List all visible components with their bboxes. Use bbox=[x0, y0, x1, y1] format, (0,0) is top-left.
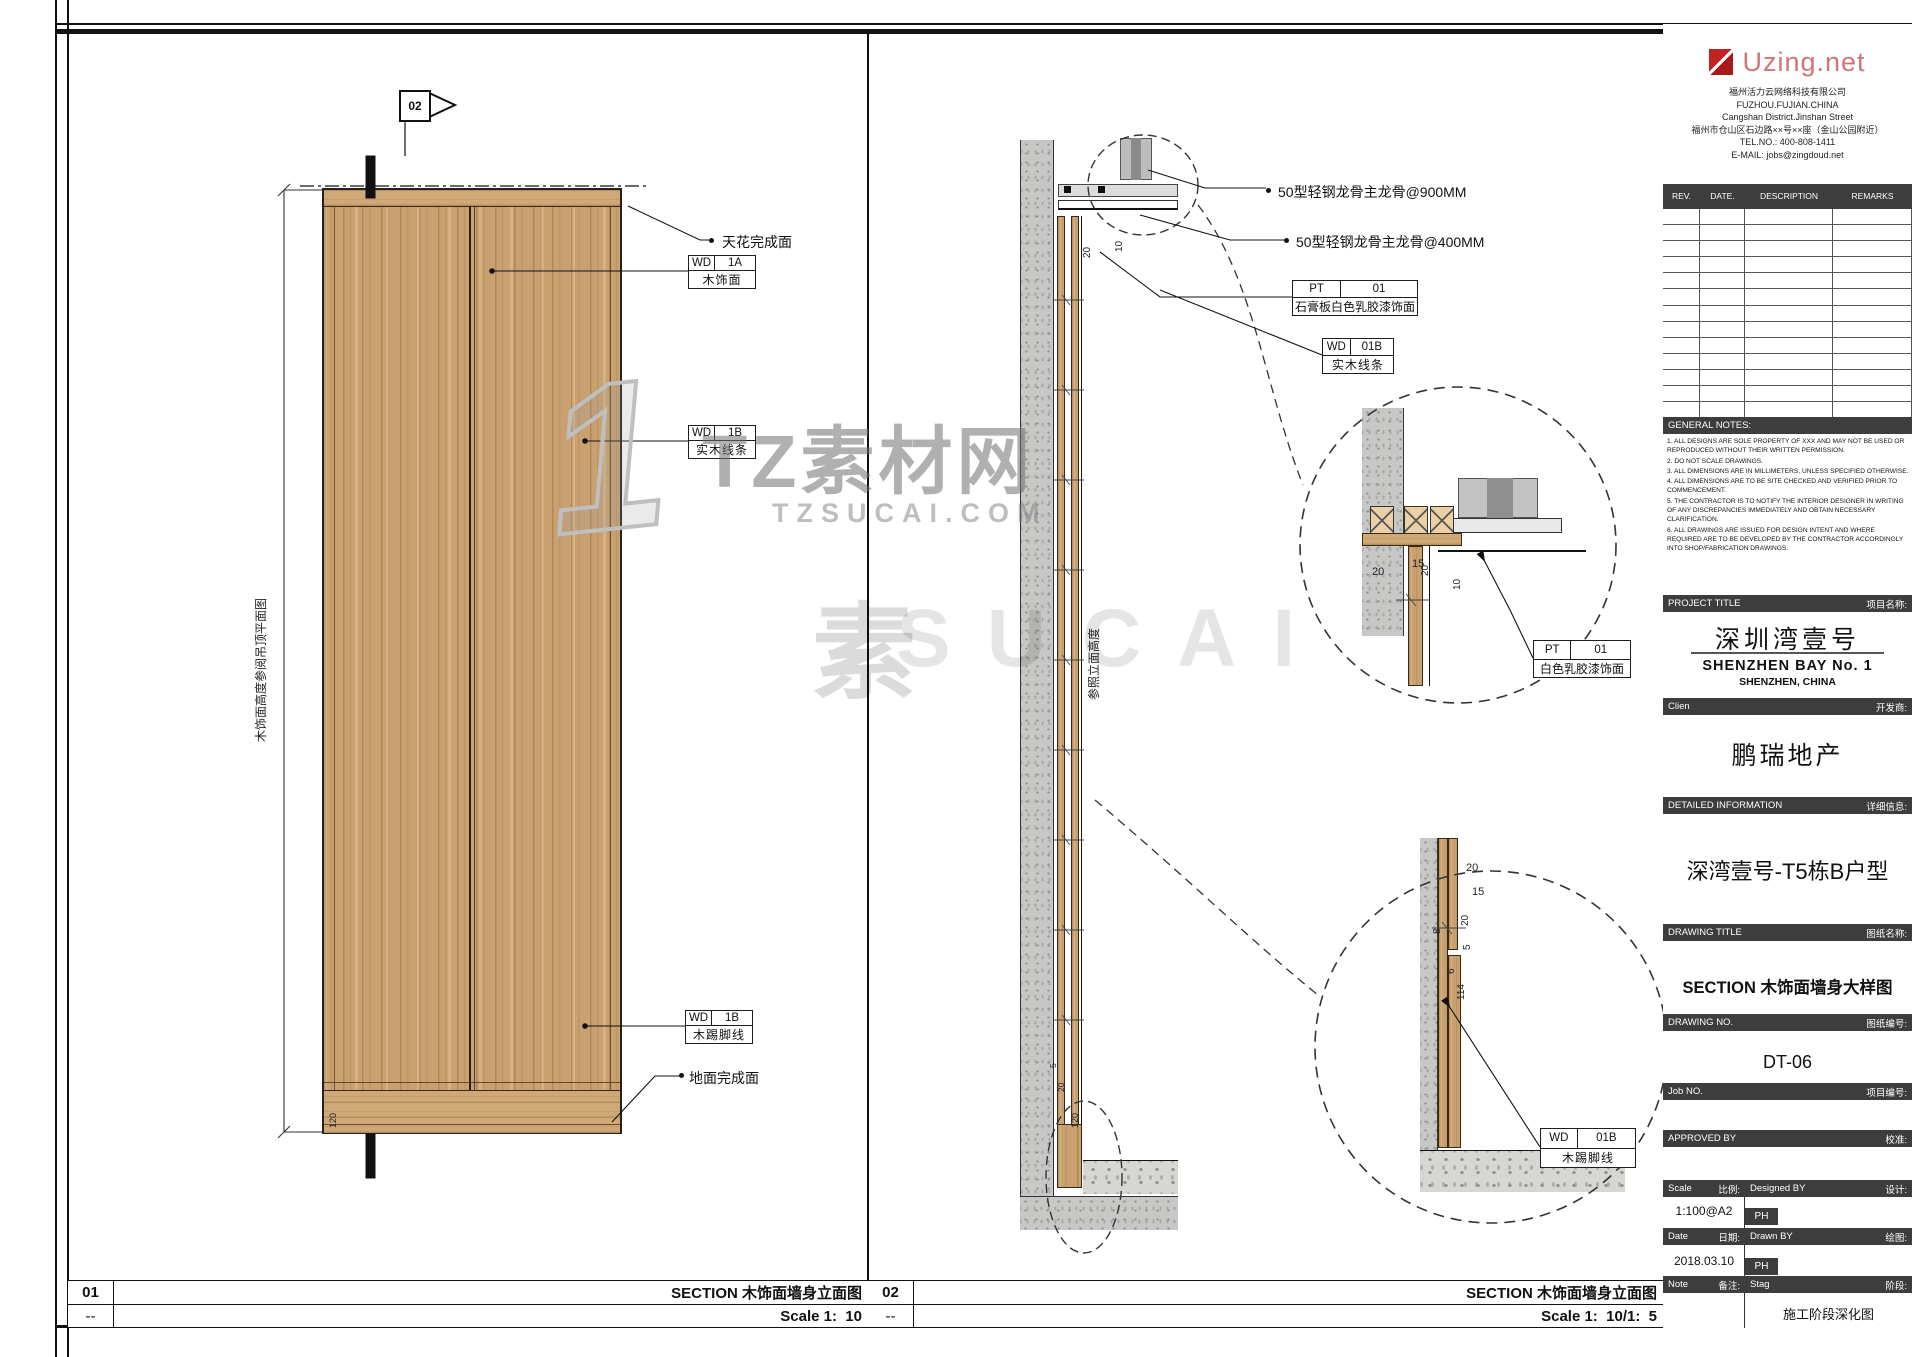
drawing-no-label-cn: 图纸编号: bbox=[1866, 1016, 1907, 1030]
designed-by-label-cn: 设计: bbox=[1885, 1182, 1907, 1196]
elevation-skirt-dim: 120 bbox=[328, 1113, 338, 1128]
wall-furring-strip bbox=[1057, 216, 1065, 1144]
wood-panel-top-rail bbox=[324, 190, 620, 207]
tag-wd1a: WD 1A 木饰面 bbox=[688, 255, 756, 289]
tag-pt01-paint-num: 01 bbox=[1571, 641, 1630, 659]
rev-table-header: REV. DATE. DESCRIPTION REMARKS bbox=[1663, 184, 1912, 209]
skirting-shadow-line bbox=[324, 1082, 620, 1083]
stage-label-en: Stag bbox=[1750, 1279, 1770, 1290]
view-02-scale: Scale 1: 10/1: 5 bbox=[914, 1308, 1663, 1325]
client-bar: Clien 开发商: bbox=[1663, 698, 1912, 715]
section-skirting bbox=[1057, 1124, 1082, 1188]
tag-wd01b-skirt-code: WD bbox=[1541, 1129, 1578, 1148]
drawn-by-value: PH bbox=[1745, 1258, 1778, 1275]
date-value: 2018.03.10 bbox=[1663, 1254, 1745, 1268]
tag-pt01-gypsum-code: PT bbox=[1293, 281, 1341, 297]
tag-pt01-gypsum: PT 01 石膏板白色乳胶漆饰面 bbox=[1292, 280, 1418, 316]
detail-top-blocking-a bbox=[1370, 506, 1394, 535]
dim-db-c: 20 bbox=[1460, 915, 1471, 926]
view-01-rev: -- bbox=[68, 1305, 114, 1327]
dim-dt-d: 20 bbox=[1372, 566, 1384, 578]
section-leaders bbox=[1100, 170, 1540, 1147]
date-label-en: Date bbox=[1668, 1231, 1688, 1242]
tag-wd1b-skirt-desc: 木踢脚线 bbox=[686, 1026, 752, 1043]
designed-by-label-en: Designed BY bbox=[1750, 1183, 1805, 1194]
tag-wd01b-skirt-desc: 木踢脚线 bbox=[1541, 1149, 1635, 1168]
ceiling-fixing-b bbox=[1098, 186, 1105, 193]
tag-wd1b-skirt-code: WD bbox=[686, 1011, 712, 1025]
dim-db-a: 20 bbox=[1466, 862, 1478, 874]
general-notes-heading: GENERAL NOTES: bbox=[1668, 420, 1751, 431]
view-02-rev: -- bbox=[868, 1305, 914, 1327]
client-label-en: Clien bbox=[1668, 701, 1690, 712]
tag-wd1a-desc: 木饰面 bbox=[689, 271, 755, 288]
tag-wd1b-desc: 实木线条 bbox=[689, 441, 755, 458]
tag-wd01b-trim-code: WD bbox=[1323, 339, 1351, 355]
panel-stile-right bbox=[610, 206, 611, 1090]
dim-top-a: 20 bbox=[1082, 247, 1093, 258]
approved-by-label-cn: 校准: bbox=[1885, 1132, 1907, 1146]
tag-wd1b-skirt: WD 1B 木踢脚线 bbox=[685, 1010, 753, 1044]
tag-wd1b-skirt-num: 1B bbox=[712, 1011, 752, 1025]
tag-pt01-paint: PT 01 白色乳胶漆饰面 bbox=[1533, 640, 1631, 678]
detailed-info-value: 深湾壹号-T5栋B户型 bbox=[1663, 854, 1912, 886]
project-name-en: SHENZHEN BAY No. 1 bbox=[1663, 658, 1912, 674]
section-cut-flag: 02 bbox=[399, 90, 431, 122]
panel-stile-left bbox=[334, 206, 335, 1090]
panel-center-joint-a bbox=[469, 206, 471, 1090]
tag-wd01b-skirt: WD 01B 木踢脚线 bbox=[1540, 1128, 1636, 1168]
tag-wd1b: WD 1B 实木线条 bbox=[688, 425, 756, 459]
detail-bottom-concrete bbox=[1420, 838, 1438, 1150]
rev-col-date: DATE. bbox=[1700, 184, 1745, 209]
project-location: SHENZHEN, CHINA bbox=[1663, 676, 1912, 688]
viewport-bar-01: 01 SECTION 木饰面墙身立面图 -- Scale 1: 10 bbox=[68, 1280, 868, 1327]
detail-top-gypsum bbox=[1438, 518, 1562, 533]
section-height-note: 参照立面高度 bbox=[1085, 628, 1102, 700]
keel-400-label: 50型轻钢龙骨主龙骨@400MM bbox=[1296, 232, 1484, 252]
tag-wd01b-trim-num: 01B bbox=[1351, 339, 1393, 355]
detail-top-rail bbox=[1362, 533, 1462, 546]
dim-db-g: 114 bbox=[1456, 984, 1467, 1000]
drawn-by-bar: Drawn BY 绘图: bbox=[1745, 1228, 1912, 1245]
view-01-scale: Scale 1: 10 bbox=[114, 1308, 868, 1325]
keel-400-dot bbox=[1284, 238, 1289, 243]
project-name-cn: 深圳湾壹号 bbox=[1663, 620, 1912, 656]
approved-by-label-en: APPROVED BY bbox=[1668, 1133, 1736, 1144]
rev-col-description: DESCRIPTION bbox=[1745, 184, 1833, 209]
stage-value: 施工阶段深化图 bbox=[1745, 1304, 1912, 1323]
tag-pt01-gypsum-num: 01 bbox=[1341, 281, 1417, 297]
section-fixing-ticks bbox=[1054, 295, 1466, 1025]
job-no-label-cn: 项目编号: bbox=[1866, 1085, 1907, 1099]
keel-900-label: 50型轻钢龙骨主龙骨@900MM bbox=[1278, 182, 1466, 202]
wall-panel-strip bbox=[1071, 216, 1079, 1144]
section-floor-finish bbox=[1083, 1160, 1178, 1194]
detailed-info-bar: DETAILED INFORMATION 详细信息: bbox=[1663, 797, 1912, 814]
titleblock-subcol-divider bbox=[1744, 1180, 1745, 1328]
tag-wd1a-num: 1A bbox=[715, 256, 755, 270]
rev-col-remarks: REMARKS bbox=[1833, 184, 1912, 209]
margin-line-inner bbox=[67, 0, 69, 1357]
wood-panel-elevation bbox=[322, 188, 622, 1134]
detail-bottom-furring bbox=[1438, 838, 1448, 1148]
designed-by-value: PH bbox=[1745, 1208, 1778, 1225]
dim-db-d: 8 bbox=[1432, 928, 1443, 934]
skirting-base-line bbox=[324, 1124, 620, 1125]
drawing-title-value: SECTION 木饰面墙身大样图 bbox=[1663, 974, 1912, 998]
detail-top-blocking-c bbox=[1430, 506, 1454, 535]
stage-label-cn: 阶段: bbox=[1885, 1278, 1907, 1292]
job-no-label-en: Job NO. bbox=[1668, 1086, 1703, 1097]
watermark-faint-letters: SUCAI bbox=[896, 592, 1331, 686]
panel-divider bbox=[867, 34, 869, 1328]
project-name-underline bbox=[1691, 652, 1884, 654]
tag-wd01b-skirt-num: 01B bbox=[1578, 1129, 1635, 1148]
tag-wd01b-trim: WD 01B 实木线条 bbox=[1322, 338, 1394, 374]
watermark-domain: TZSUCAI.COM bbox=[772, 498, 1047, 529]
tag-pt01-paint-code: PT bbox=[1534, 641, 1571, 659]
client-label-cn: 开发商: bbox=[1876, 700, 1907, 714]
drawing-title-label-en: DRAWING TITLE bbox=[1668, 927, 1742, 938]
scale-label-en: Scale bbox=[1668, 1183, 1692, 1194]
dim-floor-c: 5 bbox=[1048, 1063, 1058, 1068]
ceiling-gypsum-board bbox=[1058, 200, 1178, 210]
watermark-faint-char: 素 bbox=[812, 568, 916, 719]
top-border-heavy bbox=[55, 29, 1912, 34]
approved-by-bar: APPROVED BY 校准: bbox=[1663, 1130, 1912, 1147]
drawing-no-label-en: DRAWING NO. bbox=[1668, 1017, 1733, 1028]
dim-floor-a: 120 bbox=[1070, 1113, 1080, 1128]
ceiling-finish-label: 天花完成面 bbox=[722, 232, 792, 252]
ceiling-finish-dot bbox=[709, 238, 714, 243]
note-label-cn: 备注: bbox=[1718, 1278, 1740, 1292]
drawing-no-value: DT-06 bbox=[1663, 1052, 1912, 1073]
designed-by-bar: Designed BY 设计: bbox=[1745, 1180, 1912, 1197]
scale-bar: Scale 比例: bbox=[1663, 1180, 1745, 1197]
section-floor-slab bbox=[1020, 1196, 1178, 1230]
stage-bar: Stag 阶段: bbox=[1745, 1276, 1912, 1293]
elevation-dim-line bbox=[278, 184, 322, 1138]
scale-value: 1:100@A2 bbox=[1663, 1204, 1745, 1218]
rev-table-rows bbox=[1663, 209, 1912, 418]
detail-top-hanger-core bbox=[1487, 478, 1513, 518]
concrete-wall bbox=[1020, 140, 1054, 1198]
general-notes-list: 1. ALL DESIGNS ARE SOLE PROPERTY OF XXX … bbox=[1663, 434, 1914, 555]
floor-finish-label: 地面完成面 bbox=[689, 1068, 759, 1088]
uzing-logo-text: Uzing.net bbox=[1742, 47, 1865, 78]
ceiling-fixing-a bbox=[1064, 186, 1071, 193]
drawing-no-bar: DRAWING NO. 图纸编号: bbox=[1663, 1014, 1912, 1031]
keel-900-dot bbox=[1266, 188, 1271, 193]
job-no-bar: Job NO. 项目编号: bbox=[1663, 1083, 1912, 1100]
dim-db-b: 15 bbox=[1472, 886, 1484, 898]
margin-line-outer bbox=[55, 0, 57, 1357]
dim-db-e: 5 bbox=[1462, 944, 1473, 950]
ceiling-main-keel bbox=[1058, 184, 1178, 197]
project-title-label-en: PROJECT TITLE bbox=[1668, 598, 1741, 609]
client-name: 鹏瑞地产 bbox=[1663, 736, 1912, 772]
dim-floor-b: 20 bbox=[1056, 1083, 1066, 1092]
wall-panel-face-line bbox=[1081, 216, 1082, 1144]
view-02-title: SECTION 木饰面墙身立面图 bbox=[914, 1282, 1663, 1303]
top-border-thin bbox=[55, 23, 1912, 25]
dim-top-b: 10 bbox=[1114, 241, 1125, 252]
tag-pt01-gypsum-desc: 石膏板白色乳胶漆饰面 bbox=[1293, 298, 1417, 315]
wood-panel-skirting bbox=[324, 1090, 620, 1133]
drawing-title-label-cn: 图纸名称: bbox=[1866, 926, 1907, 940]
tag-wd01b-trim-desc: 实木线条 bbox=[1323, 356, 1393, 373]
detail-top-blocking-b bbox=[1404, 506, 1428, 535]
detailed-info-label-cn: 详细信息: bbox=[1866, 799, 1907, 813]
uzing-logo-icon bbox=[1709, 49, 1733, 75]
drawing-title-bar: DRAWING TITLE 图纸名称: bbox=[1663, 924, 1912, 941]
section-cut-flag-number: 02 bbox=[408, 99, 421, 113]
view-01-number: 01 bbox=[68, 1281, 114, 1304]
dim-dt-b: 10 bbox=[1452, 579, 1463, 590]
view-02-number: 02 bbox=[868, 1281, 914, 1304]
date-bar: Date 日期: bbox=[1663, 1228, 1745, 1245]
elevation-height-note: 木饰面高度参阅吊顶平面图 bbox=[252, 598, 269, 742]
detail-bottom-panel bbox=[1448, 838, 1458, 950]
ceiling-hanger-core bbox=[1131, 138, 1141, 180]
drawn-by-label-cn: 绘图: bbox=[1885, 1230, 1907, 1244]
note-bar: Note 备注: bbox=[1663, 1276, 1745, 1293]
rev-col-rev: REV. bbox=[1663, 184, 1700, 209]
floor-finish-dot bbox=[679, 1073, 684, 1078]
dim-dt-c: 15 bbox=[1412, 558, 1424, 570]
scale-label-cn: 比例: bbox=[1718, 1182, 1740, 1196]
general-notes-bar: GENERAL NOTES: bbox=[1663, 417, 1912, 434]
date-label-cn: 日期: bbox=[1718, 1230, 1740, 1244]
view-01-title: SECTION 木饰面墙身立面图 bbox=[114, 1282, 868, 1303]
tag-wd1b-code: WD bbox=[689, 426, 715, 440]
project-title-label-cn: 项目名称: bbox=[1866, 597, 1907, 611]
title-block: Uzing.net 福州活力云网络科技有限公司FUZHOU.FUJIAN.CHI… bbox=[1663, 24, 1912, 1328]
company-info: 福州活力云网络科技有限公司FUZHOU.FUJIAN.CHINACangshan… bbox=[1663, 86, 1912, 161]
logo-row: Uzing.net bbox=[1663, 42, 1912, 82]
note-label-en: Note bbox=[1668, 1279, 1688, 1290]
project-title-bar: PROJECT TITLE 项目名称: bbox=[1663, 595, 1912, 612]
tag-wd1a-code: WD bbox=[689, 256, 715, 270]
viewport-bar-02: 02 SECTION 木饰面墙身立面图 -- Scale 1: 10/1: 5 bbox=[868, 1280, 1663, 1327]
tag-pt01-paint-desc: 白色乳胶漆饰面 bbox=[1534, 660, 1630, 678]
drawing-sheet: 02 木饰面高度参阅吊顶平面图 120 天花完成面 WD 1A 木饰面 WD 1… bbox=[0, 0, 1919, 1357]
detailed-info-label-en: DETAILED INFORMATION bbox=[1668, 800, 1782, 811]
dim-db-f: 6 bbox=[1446, 968, 1457, 974]
panel-center-joint-b bbox=[474, 206, 475, 1090]
detail-top-ceiling-face bbox=[1438, 550, 1586, 552]
drawn-by-label-en: Drawn BY bbox=[1750, 1231, 1793, 1242]
tag-wd1b-num: 1B bbox=[715, 426, 755, 440]
